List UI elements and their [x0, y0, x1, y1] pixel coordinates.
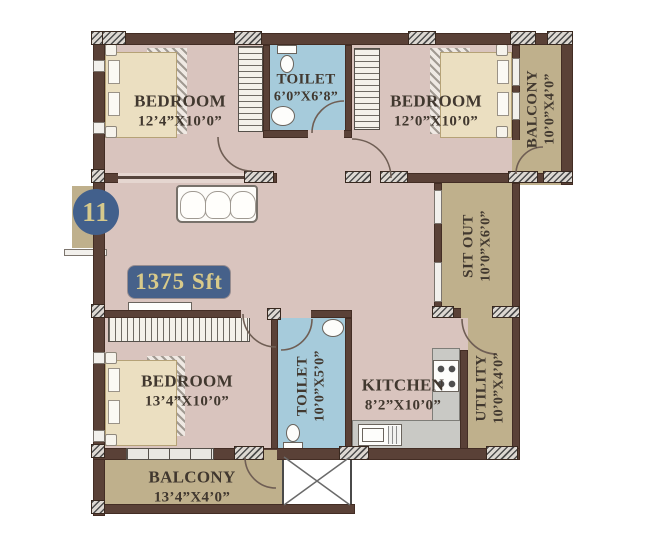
bedroom1-side-table — [105, 126, 117, 138]
wc-tank — [277, 45, 297, 54]
sofa — [176, 185, 258, 223]
wall-pier — [508, 171, 538, 183]
wall — [512, 183, 520, 458]
wall-pier — [510, 31, 536, 45]
bedroom2-wardrobe — [354, 48, 380, 130]
wall-pier — [102, 31, 126, 45]
duct-box — [282, 455, 352, 508]
wc-bowl — [286, 424, 300, 442]
wall-pier — [486, 446, 518, 460]
bedroom1-pillow — [108, 60, 120, 84]
unit-number-badge: 11 — [73, 189, 119, 235]
window — [93, 122, 105, 134]
wall-pier — [244, 171, 274, 183]
bedroom1-pillow — [108, 92, 120, 116]
window — [512, 58, 520, 86]
window — [434, 190, 442, 224]
wall — [271, 318, 278, 450]
bedroom3-wardrobe — [108, 316, 250, 342]
window — [93, 430, 105, 442]
wall-pier — [345, 171, 371, 183]
bedroom3-pillow — [108, 400, 120, 424]
wall — [561, 33, 573, 185]
opening-balcony-top — [512, 140, 520, 173]
bedroom3-pillow — [108, 368, 120, 392]
bedroom2-pillow — [497, 60, 509, 84]
wall-pier — [547, 31, 573, 45]
window — [93, 60, 105, 72]
wall — [93, 310, 352, 318]
sliding-window — [126, 448, 214, 460]
area-badge: 1375 Sft — [128, 266, 230, 298]
bedroom2-side-table — [496, 126, 508, 138]
sink-basin — [362, 428, 384, 442]
wall-pier — [234, 446, 264, 460]
wall-pier — [432, 306, 454, 318]
wall-pier — [492, 306, 520, 318]
floor-plan: BEDROOM12’4”X10’0” TOILET6’0”X6’8” BEDRO… — [0, 0, 654, 540]
wall-pier — [339, 446, 369, 460]
window — [93, 352, 105, 364]
wall — [93, 33, 573, 45]
wall-pier — [267, 308, 281, 320]
wall-pier — [543, 171, 573, 183]
bedroom2-side-table — [496, 44, 508, 56]
wall-pier — [91, 169, 105, 183]
washbasin — [322, 319, 344, 337]
drain-board — [388, 426, 400, 444]
bedroom3-side-table — [105, 434, 117, 446]
bedroom1-side-table — [105, 44, 117, 56]
opening-bedroom3 — [241, 310, 269, 318]
wall — [460, 350, 468, 450]
opening-toilet-top — [308, 130, 344, 138]
wall-pier — [380, 171, 408, 183]
wall — [345, 45, 352, 138]
bedroom3-side-table — [105, 352, 117, 364]
wall-pier — [91, 500, 105, 514]
wall-pier — [91, 304, 105, 318]
wall-pier — [234, 31, 262, 45]
window — [434, 262, 442, 302]
opening-toilet-bottom — [281, 310, 311, 318]
wall-pier — [91, 444, 105, 458]
bedroom2-pillow — [497, 92, 509, 116]
wall — [263, 45, 270, 138]
washbasin — [271, 106, 295, 126]
wall — [345, 318, 352, 450]
bedroom1-wardrobe — [238, 46, 263, 132]
opening-line — [118, 176, 244, 179]
wall-pier — [408, 31, 436, 45]
window — [512, 92, 520, 120]
